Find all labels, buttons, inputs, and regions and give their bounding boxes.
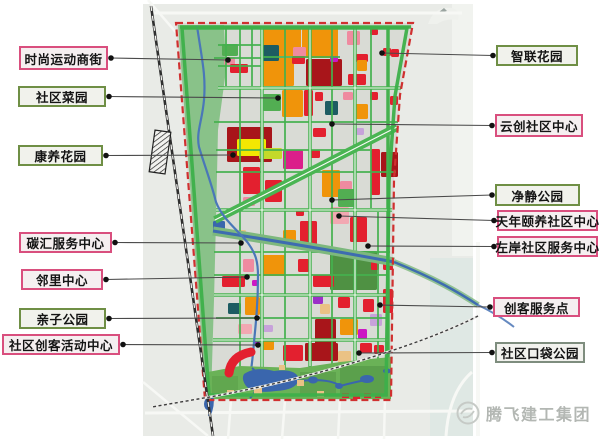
watermark-logo-icon [454, 399, 482, 427]
map-label-right-2: 净静公园 [495, 184, 580, 206]
watermark-text: 腾飞建工集团 [486, 401, 591, 425]
map-label-left-6: 社区创客活动中心 [2, 334, 120, 355]
map-label-right-1: 云创社区中心 [495, 114, 583, 137]
map-label-right-3: 天年颐养社区中心 [497, 210, 598, 231]
map-label-left-0: 时尚运动商街 [19, 46, 108, 70]
map-label-right-5: 创客服务点 [493, 297, 580, 317]
map-label-left-4: 邻里中心 [21, 269, 103, 290]
map-label-left-1: 社区菜园 [18, 86, 106, 107]
watermark: 腾飞建工集团 [454, 399, 591, 427]
map-label-right-6: 社区口袋公园 [495, 342, 585, 363]
map-label-right-0: 智联花园 [496, 45, 578, 66]
map-label-left-5: 亲子公园 [19, 308, 106, 329]
planning-map-page: 时尚运动商街社区菜园康养花园碳汇服务中心邻里中心亲子公园社区创客活动中心智联花园… [0, 0, 600, 439]
map-label-left-2: 康养花园 [18, 145, 103, 166]
map-label-left-3: 碳汇服务中心 [19, 232, 112, 253]
map-label-right-4: 左岸社区服务中心 [497, 236, 598, 257]
